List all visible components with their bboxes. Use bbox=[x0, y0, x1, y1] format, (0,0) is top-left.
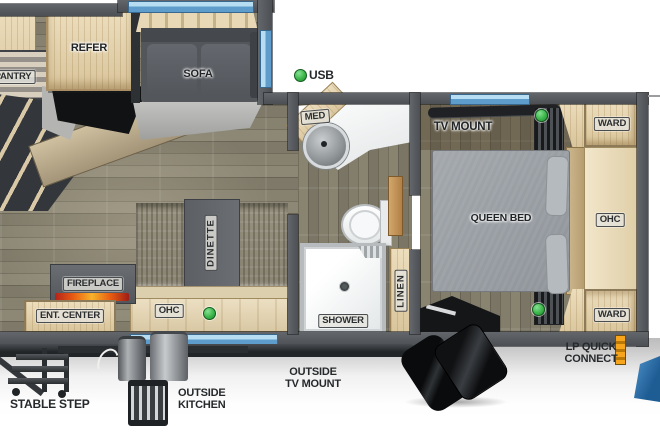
toilet-seat bbox=[349, 210, 381, 240]
label-refer: REFER bbox=[71, 42, 107, 54]
label-outside-kitchen: OUTSIDE KITCHEN bbox=[178, 388, 226, 411]
window-slideout-top bbox=[128, 1, 254, 13]
shower-drain bbox=[339, 281, 350, 292]
outside-kitchen-grill bbox=[128, 380, 168, 426]
desk-highlight bbox=[426, 304, 456, 315]
label-ward-bottom: WARD bbox=[594, 308, 630, 322]
label-outside-tv-mount-line2: TV MOUNT bbox=[268, 378, 358, 390]
stable-step-tread bbox=[16, 354, 68, 360]
wall-top-left bbox=[0, 4, 122, 16]
rv-floorplan: PANTRY REFER SOFA USB MED TV MOUNT WARD … bbox=[0, 0, 660, 440]
usb-indicator-icon bbox=[535, 109, 548, 122]
hitch-line bbox=[648, 95, 660, 97]
label-stable-step: STABLE STEP bbox=[10, 397, 90, 411]
dinette-bench-left bbox=[136, 203, 184, 287]
label-outside-tv-mount: OUTSIDE TV MOUNT bbox=[268, 366, 358, 390]
label-ohc-living: OHC bbox=[155, 304, 184, 318]
label-usb: USB bbox=[309, 68, 334, 82]
usb-indicator-icon bbox=[532, 303, 545, 316]
wall-bedroom-left-upper bbox=[410, 93, 420, 195]
label-outside-tv-mount-line1: OUTSIDE bbox=[268, 366, 358, 378]
label-sofa: SOFA bbox=[183, 68, 212, 80]
outside-kitchen-canister bbox=[118, 336, 146, 381]
window-slideout-right bbox=[260, 30, 272, 88]
label-pantry: PANTRY bbox=[0, 70, 35, 84]
wall-bedroom-left-lower bbox=[410, 250, 420, 334]
stable-step-wheel bbox=[12, 388, 20, 396]
label-lp-quick-connect-line1: LP QUICK bbox=[553, 341, 629, 353]
outside-kitchen-canister bbox=[150, 331, 188, 381]
label-lp-quick-connect-line2: CONNECT bbox=[553, 353, 629, 365]
sofa-back bbox=[141, 28, 258, 42]
sofa bbox=[141, 28, 258, 102]
stable-step-tread bbox=[8, 378, 68, 384]
dinette-bench-right bbox=[238, 203, 288, 287]
usb-indicator-icon bbox=[203, 307, 216, 320]
label-ent-center: ENT. CENTER bbox=[36, 309, 104, 323]
label-queen-bed: QUEEN BED bbox=[471, 212, 532, 224]
label-ward-top: WARD bbox=[594, 117, 630, 131]
bed-pillow bbox=[545, 234, 569, 295]
wall-bathroom-left-upper bbox=[288, 93, 298, 150]
wall-right bbox=[637, 93, 648, 346]
label-shower: SHOWER bbox=[318, 314, 368, 328]
label-med: MED bbox=[300, 109, 330, 125]
bath-wood-board bbox=[388, 176, 403, 236]
wall-bathroom-left-lower bbox=[288, 215, 298, 334]
bath-sink-drain bbox=[321, 141, 327, 147]
stable-step-tread bbox=[12, 366, 68, 372]
usb-indicator-icon bbox=[294, 69, 307, 82]
label-ohc-bedroom: OHC bbox=[596, 213, 625, 227]
label-fireplace: FIREPLACE bbox=[63, 277, 123, 291]
label-outside-kitchen-line2: KITCHEN bbox=[178, 400, 226, 412]
label-linen: LINEN bbox=[395, 270, 408, 312]
bed-pillow bbox=[545, 156, 569, 217]
label-lp-quick-connect: LP QUICK CONNECT bbox=[553, 341, 629, 365]
window-bedroom-top bbox=[450, 94, 530, 105]
label-outside-kitchen-line1: OUTSIDE bbox=[178, 388, 226, 400]
label-dinette: DINETTE bbox=[205, 215, 218, 271]
label-tv-mount: TV MOUNT bbox=[434, 121, 492, 133]
